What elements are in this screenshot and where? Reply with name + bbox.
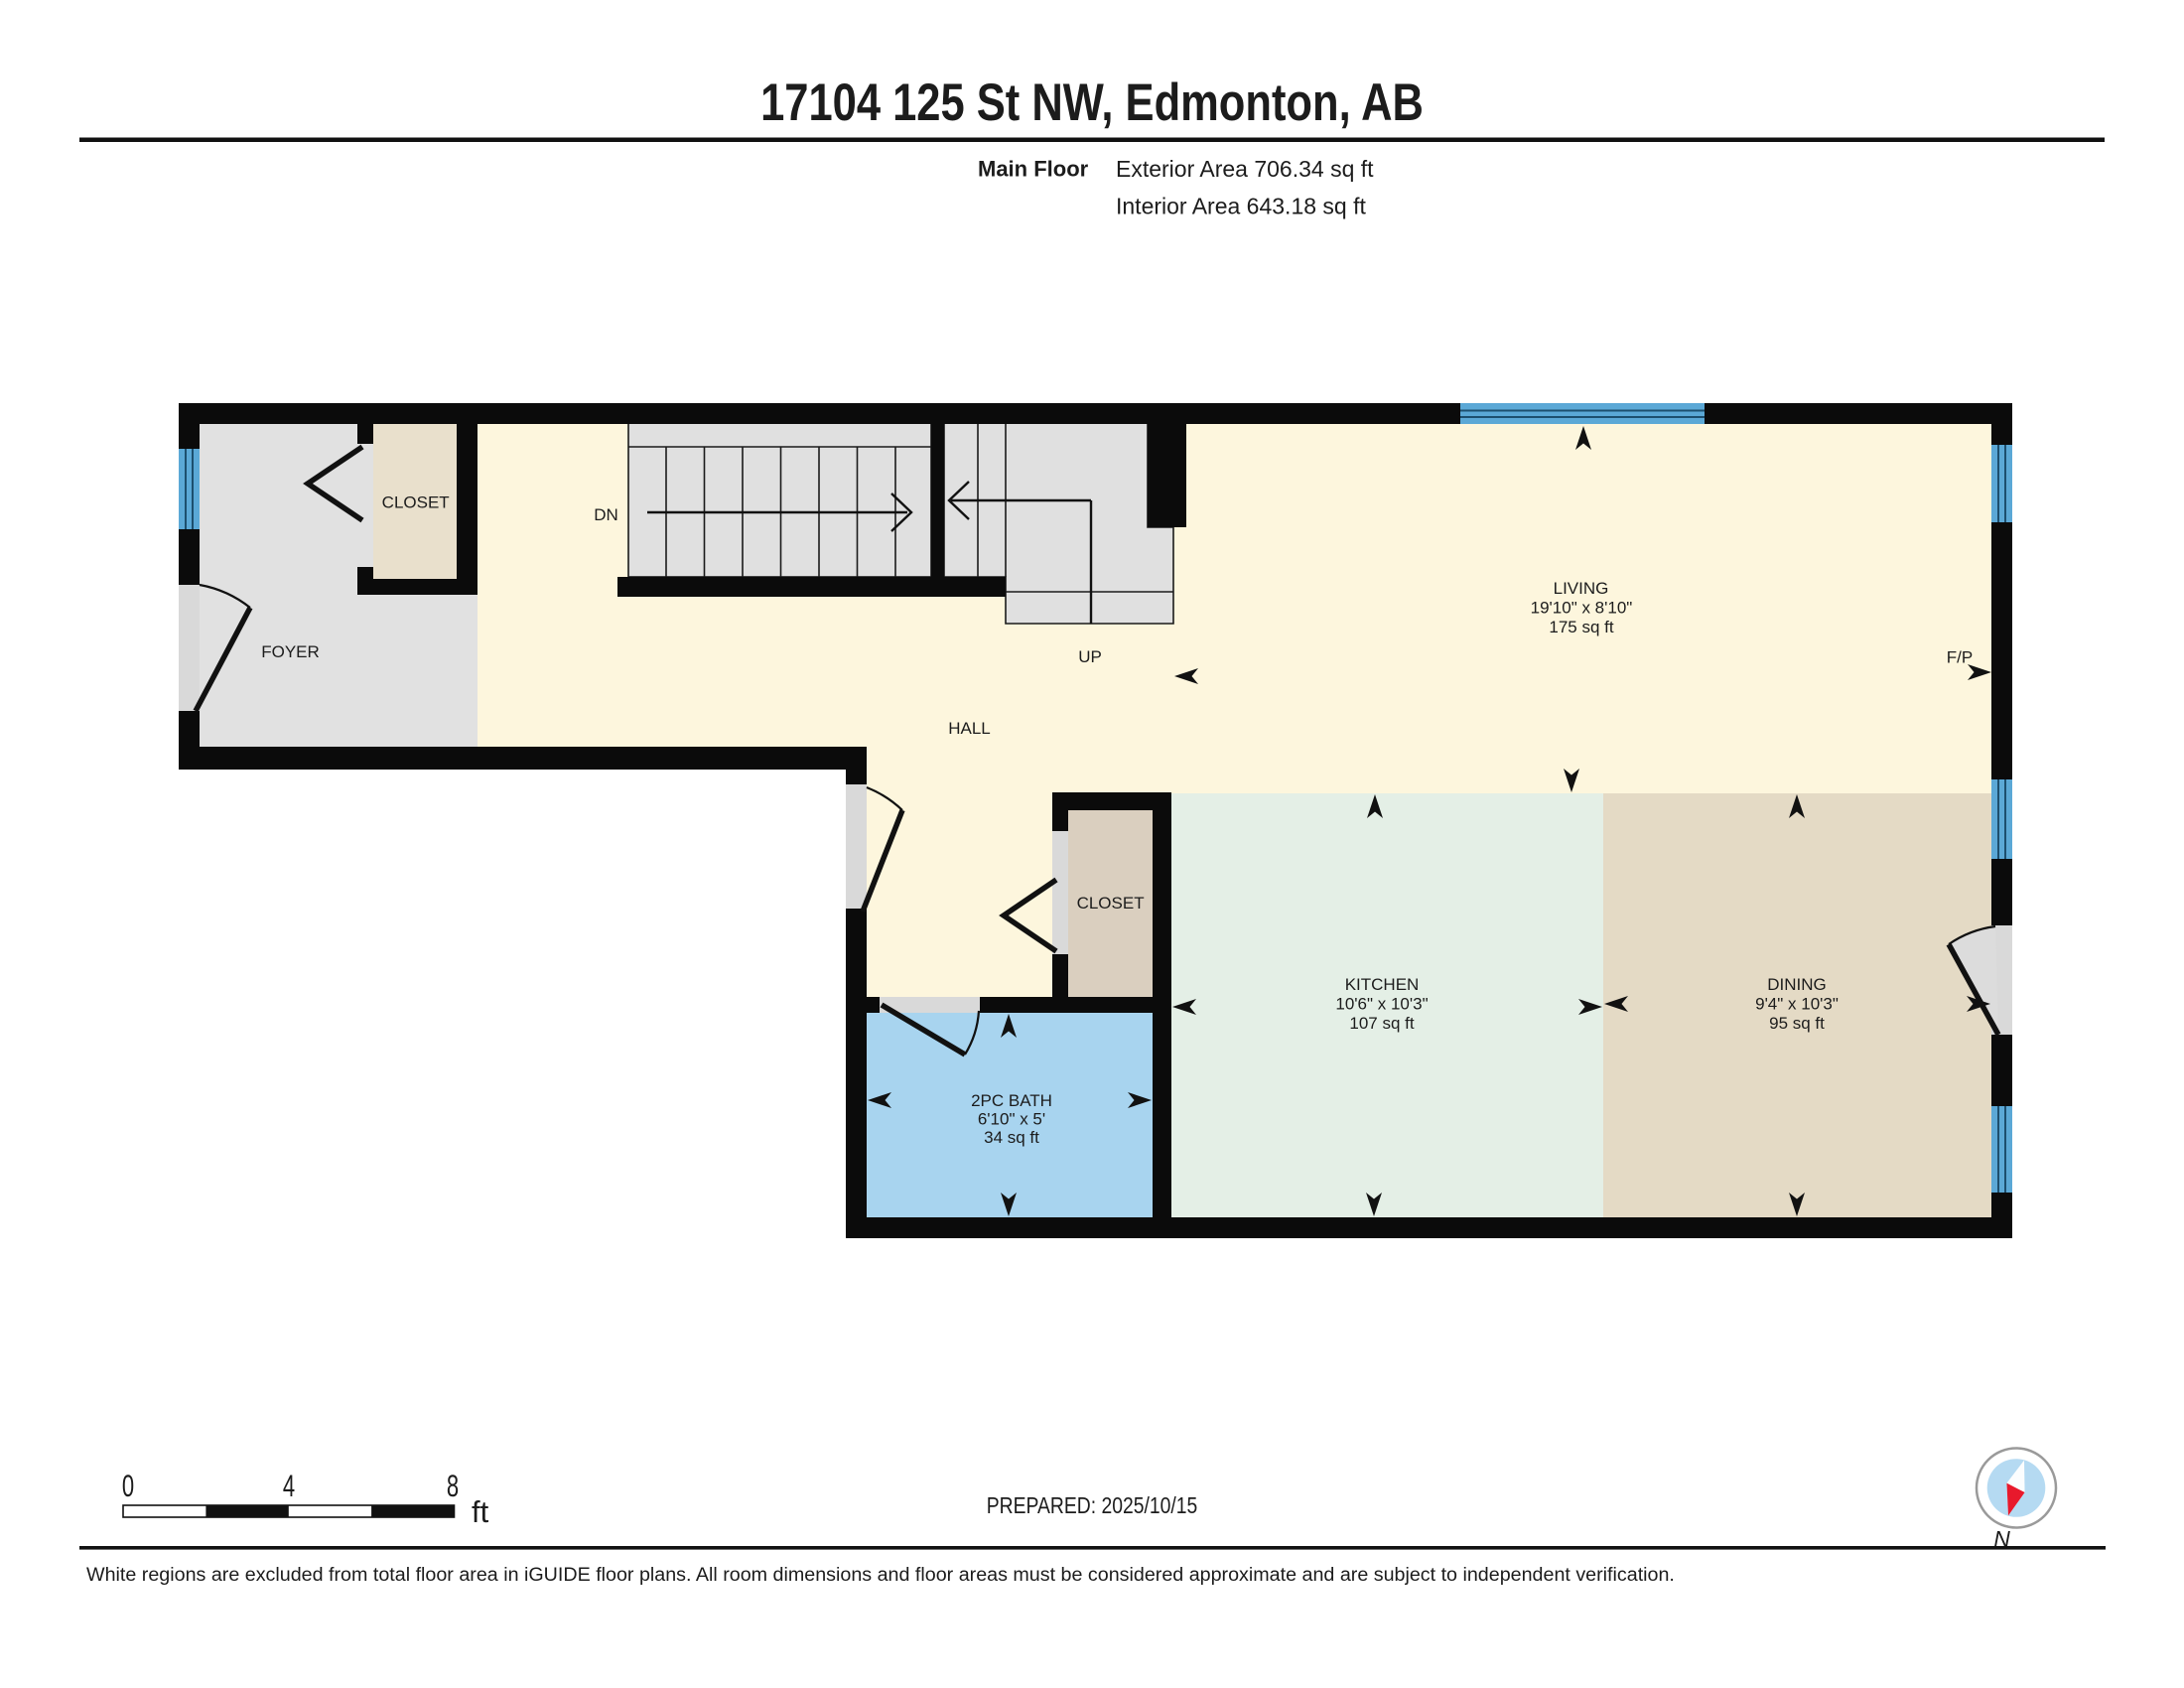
svg-text:95 sq ft: 95 sq ft	[1769, 1014, 1825, 1033]
svg-text:UP: UP	[1078, 647, 1102, 666]
svg-text:PREPARED: 2025/10/15: PREPARED: 2025/10/15	[987, 1492, 1197, 1518]
svg-text:FOYER: FOYER	[261, 642, 320, 661]
svg-text:10'6" x 10'3": 10'6" x 10'3"	[1335, 994, 1428, 1013]
svg-text:LIVING: LIVING	[1554, 579, 1609, 598]
svg-text:DN: DN	[594, 505, 618, 524]
svg-text:4: 4	[283, 1468, 295, 1503]
svg-text:175 sq ft: 175 sq ft	[1549, 618, 1613, 636]
svg-text:White regions are excluded fro: White regions are excluded from total fl…	[86, 1564, 1675, 1586]
svg-text:2PC BATH: 2PC BATH	[971, 1091, 1052, 1110]
svg-text:34 sq ft: 34 sq ft	[984, 1128, 1039, 1147]
svg-text:9'4" x 10'3": 9'4" x 10'3"	[1755, 994, 1839, 1013]
svg-text:ft: ft	[472, 1494, 489, 1529]
svg-text:17104 125 St NW, Edmonton, AB: 17104 125 St NW, Edmonton, AB	[760, 73, 1424, 132]
svg-text:CLOSET: CLOSET	[1077, 894, 1145, 913]
svg-text:DINING: DINING	[1767, 975, 1827, 994]
svg-text:F/P: F/P	[1947, 648, 1973, 667]
svg-text:Exterior Area 706.34 sq ft: Exterior Area 706.34 sq ft	[1116, 156, 1374, 182]
svg-text:Interior Area 643.18 sq ft: Interior Area 643.18 sq ft	[1116, 193, 1366, 218]
svg-text:19'10" x 8'10": 19'10" x 8'10"	[1531, 598, 1633, 617]
svg-text:Main Floor: Main Floor	[978, 157, 1089, 182]
svg-text:HALL: HALL	[948, 719, 991, 738]
svg-text:6'10" x 5': 6'10" x 5'	[978, 1109, 1045, 1128]
svg-text:CLOSET: CLOSET	[382, 493, 450, 512]
svg-text:0: 0	[122, 1468, 134, 1503]
svg-text:KITCHEN: KITCHEN	[1345, 975, 1420, 994]
svg-text:8: 8	[447, 1468, 459, 1503]
svg-text:107 sq ft: 107 sq ft	[1349, 1014, 1414, 1033]
